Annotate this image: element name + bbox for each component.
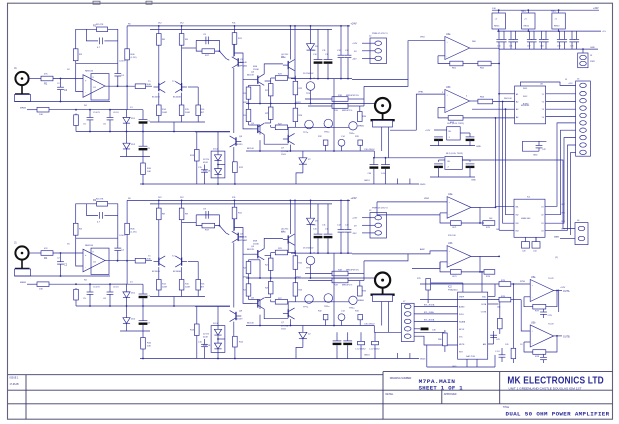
svg-text:C52: C52 (527, 46, 530, 48)
svg-text:MAIN: MAIN (554, 236, 560, 239)
svg-text:OP4: OP4 (561, 229, 565, 231)
svg-text:C55: C55 (570, 46, 573, 48)
svg-text:O4: O4 (541, 230, 544, 232)
svg-text:GND: GND (476, 146, 481, 148)
svg-text:DUAL 50 OHM POWER AMPLIFIER: DUAL 50 OHM POWER AMPLIFIER (506, 410, 610, 417)
svg-text:2.2N: 2.2N (548, 315, 553, 317)
svg-text:C30: C30 (368, 173, 373, 175)
svg-text:RL2 (0.05, TR12): RL2 (0.05, TR12) (446, 153, 463, 155)
svg-text:AIN2: AIN2 (420, 248, 425, 251)
svg-text:-: - (449, 263, 450, 265)
svg-text:C.1U 100NJ: C.1U 100NJ (355, 349, 365, 351)
svg-text:+: + (532, 285, 534, 287)
svg-text:1.0U: 1.0U (381, 173, 386, 175)
svg-text:VREF: VREF (459, 297, 465, 299)
svg-text:IN2: IN2 (516, 215, 519, 217)
svg-text:J3: J3 (590, 55, 593, 57)
svg-text:-: - (449, 214, 450, 216)
svg-text:U3b: U3b (446, 86, 451, 89)
svg-text:R72: R72 (486, 227, 491, 229)
svg-text:C50: C50 (497, 46, 500, 48)
svg-text:Y4: Y4 (542, 117, 544, 119)
svg-text:A4: A4 (516, 116, 518, 119)
svg-text:R64 10K: R64 10K (504, 98, 512, 100)
svg-text:R64: R64 (480, 97, 485, 99)
svg-text:C43: C43 (522, 251, 525, 253)
svg-text:R73: R73 (453, 276, 458, 278)
svg-text:J7: J7 (403, 301, 406, 303)
svg-text:R77: R77 (535, 311, 540, 313)
svg-text:OP2: OP2 (561, 213, 565, 215)
svg-text:(2): (2) (555, 257, 558, 259)
svg-text:BTL_BCKA: BTL_BCKA (424, 318, 435, 321)
svg-text:+24V: +24V (560, 287, 566, 289)
svg-text:C45: C45 (505, 344, 508, 346)
svg-text:+: + (449, 251, 451, 253)
svg-text:APPROVED: APPROVED (444, 393, 457, 396)
svg-text:VDD: VDD (482, 297, 487, 299)
svg-text:U6: U6 (540, 84, 544, 86)
svg-text:REG1: REG1 (494, 26, 500, 28)
svg-text:OUTB: OUTB (481, 312, 487, 314)
svg-text:GND: GND (590, 47, 595, 49)
svg-text:MUTE: MUTE (459, 344, 465, 346)
svg-text:A3: A3 (516, 108, 518, 111)
svg-text:O1: O1 (541, 206, 544, 208)
svg-text:DAC PCB: DAC PCB (466, 355, 476, 358)
svg-text:+: + (449, 202, 451, 204)
svg-text:OUTA: OUTA (563, 290, 570, 293)
svg-text:PGA2310: PGA2310 (448, 289, 458, 292)
svg-text:TITLE: TITLE (503, 407, 510, 409)
svg-text:10K: 10K (497, 307, 501, 309)
svg-text:DETAIL: DETAIL (386, 393, 395, 396)
svg-text:U4b: U4b (448, 242, 453, 245)
svg-text:OP3: OP3 (561, 221, 565, 223)
svg-text:R60: R60 (472, 41, 477, 43)
svg-text:U4a: U4a (448, 193, 453, 196)
svg-text:SCLK: SCLK (459, 314, 465, 316)
svg-text:SIG2: SIG2 (523, 96, 527, 98)
svg-text:U3a: U3a (446, 33, 451, 36)
svg-text:MCLK: MCLK (459, 329, 465, 331)
svg-text:ISSUE 1: ISSUE 1 (10, 378, 20, 380)
svg-text:IC2: IC2 (448, 286, 452, 289)
svg-text:J6: J6 (577, 220, 580, 222)
svg-text:IN4: IN4 (516, 230, 519, 232)
svg-text:OUTB: OUTB (563, 335, 570, 338)
svg-text:UNIT 1 GREENLAND CASTLE DOUGLA: UNIT 1 GREENLAND CASTLE DOUGLAS IOM 1ST (509, 387, 583, 390)
svg-text:+15: +15 (602, 31, 606, 33)
svg-text:R75B: R75B (520, 281, 525, 283)
svg-text:U5a: U5a (531, 276, 536, 279)
svg-text:+34V: +34V (593, 7, 599, 10)
svg-text:R62: R62 (480, 68, 485, 70)
svg-text:GND: GND (533, 155, 538, 157)
svg-text:+: + (447, 95, 449, 97)
svg-text:J5: J5 (565, 79, 568, 81)
svg-text:VOL: VOL (459, 336, 463, 338)
svg-text:GND: GND (452, 366, 457, 368)
svg-text:C.1U: C.1U (495, 351, 500, 353)
svg-text:C51: C51 (509, 46, 512, 48)
svg-text:1U: 1U (520, 344, 523, 346)
svg-text:3: 3 (442, 92, 443, 94)
svg-text:SIG1: SIG1 (523, 88, 527, 90)
svg-text:-: - (447, 109, 448, 111)
svg-text:A2: A2 (516, 101, 518, 104)
svg-text:RL1 (0.05, TR11): RL1 (0.05, TR11) (447, 123, 464, 125)
svg-text:+: + (532, 331, 534, 333)
svg-text:D10: D10 (492, 8, 497, 10)
svg-text:C54: C54 (557, 46, 560, 48)
svg-text:O3: O3 (541, 223, 544, 225)
svg-text:R74: R74 (486, 276, 491, 278)
svg-text:C53: C53 (540, 46, 543, 48)
svg-text:BTL_DINA: BTL_DINA (424, 311, 434, 314)
svg-text:REG2: REG2 (524, 26, 530, 28)
svg-text:U5b: U5b (531, 321, 536, 324)
svg-text:17-06-95: 17-06-95 (10, 384, 20, 386)
svg-text:Y1: Y1 (542, 94, 544, 96)
svg-text:R71: R71 (453, 227, 458, 229)
svg-text:-: - (447, 56, 448, 58)
svg-text:R79: R79 (417, 278, 422, 280)
svg-text:R80: R80 (438, 339, 443, 341)
svg-text:+: + (447, 42, 449, 44)
svg-text:+15V: +15V (568, 83, 573, 85)
svg-text:TL072: TL072 (548, 278, 555, 280)
svg-text:J5: J5 (577, 79, 580, 81)
svg-text:GND: GND (471, 180, 476, 182)
svg-text:VIN1: VIN1 (420, 37, 425, 39)
svg-text:OUTA: OUTA (481, 303, 487, 306)
svg-text:-: - (532, 297, 533, 299)
svg-text:DRAWING NUMBER: DRAWING NUMBER (390, 377, 412, 380)
svg-text:C41: C41 (496, 339, 501, 341)
svg-text:R61: R61 (452, 68, 457, 70)
svg-text:7815: 7815 (521, 11, 526, 13)
svg-text:R78: R78 (535, 356, 540, 358)
svg-text:C40: C40 (432, 330, 437, 332)
svg-text:10K: 10K (489, 218, 493, 220)
svg-text:MK ELECTRONICS LTD: MK ELECTRONICS LTD (507, 375, 604, 386)
svg-text:VFB2: VFB2 (424, 198, 430, 200)
svg-text:BTL_RCKA: BTL_RCKA (424, 304, 435, 307)
svg-text:VFB1: VFB1 (418, 92, 424, 94)
svg-text:C42: C42 (542, 149, 547, 151)
svg-text:SHEET 1 OF 1: SHEET 1 OF 1 (419, 384, 464, 391)
svg-text:R70 10K: R70 10K (448, 235, 456, 237)
svg-text:PWR: PWR (590, 61, 595, 63)
svg-text:C44: C44 (533, 251, 536, 253)
svg-text:SDATA: SDATA (459, 320, 466, 323)
svg-text:REG3: REG3 (554, 26, 560, 28)
svg-text:AGND: AGND (523, 103, 529, 106)
svg-text:O2: O2 (541, 215, 544, 217)
svg-text:HSEL504: HSEL504 (521, 218, 531, 220)
svg-text:-: - (532, 343, 533, 345)
svg-text:IN3: IN3 (516, 223, 519, 225)
svg-text:A1: A1 (516, 93, 518, 96)
svg-text:5: 5 (466, 96, 467, 98)
svg-text:Y2: Y2 (542, 102, 544, 104)
svg-text:AGND: AGND (459, 306, 465, 309)
svg-text:OP1: OP1 (561, 204, 565, 206)
svg-text:+24V: +24V (425, 130, 431, 132)
svg-text:IC1: IC1 (527, 197, 531, 199)
svg-text:IN1: IN1 (516, 206, 519, 208)
svg-text:TL072: TL072 (548, 324, 555, 326)
svg-text:Y3: Y3 (542, 109, 544, 111)
svg-text:7915: 7915 (551, 11, 556, 13)
svg-text:C.1U 100NJ: C.1U 100NJ (369, 349, 379, 351)
